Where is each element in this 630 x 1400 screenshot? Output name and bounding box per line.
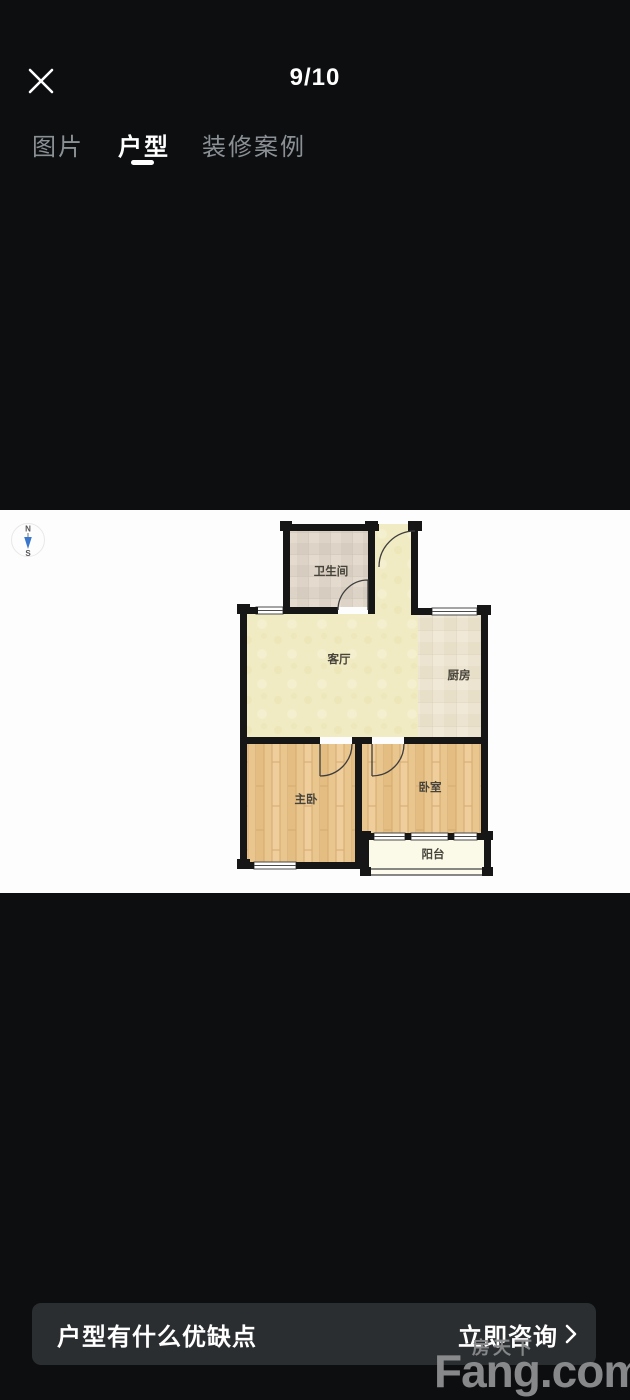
consult-question: 户型有什么优缺点	[57, 1317, 257, 1352]
consult-bar[interactable]: 户型有什么优缺点 立即咨询	[32, 1303, 596, 1365]
tab-pictures[interactable]: 图片	[32, 127, 84, 162]
consult-now-button[interactable]: 立即咨询	[458, 1317, 578, 1352]
label-bathroom: 卫生间	[314, 564, 349, 578]
floorplan-drawing: 卫生间 客厅 厨房 主卧 卧室 阳台	[0, 510, 630, 893]
chevron-right-icon	[564, 1323, 578, 1345]
room-living	[244, 614, 418, 737]
compass-south-label: S	[25, 549, 31, 558]
consult-now-label: 立即咨询	[458, 1317, 558, 1352]
compass: N S	[8, 520, 48, 560]
label-living-room: 客厅	[327, 652, 351, 666]
label-master-bedroom: 主卧	[295, 792, 318, 806]
floorplan-image[interactable]: N S	[0, 510, 630, 893]
label-bedroom: 卧室	[419, 780, 442, 794]
active-tab-underline	[131, 160, 154, 165]
page-counter: 9/10	[0, 64, 630, 92]
room-hallway	[375, 524, 411, 614]
tab-floorplan[interactable]: 户型	[118, 127, 170, 162]
label-balcony: 阳台	[422, 847, 445, 861]
label-kitchen: 厨房	[448, 668, 471, 682]
tab-decoration-cases[interactable]: 装修案例	[202, 127, 306, 162]
compass-north-label: N	[25, 525, 31, 534]
